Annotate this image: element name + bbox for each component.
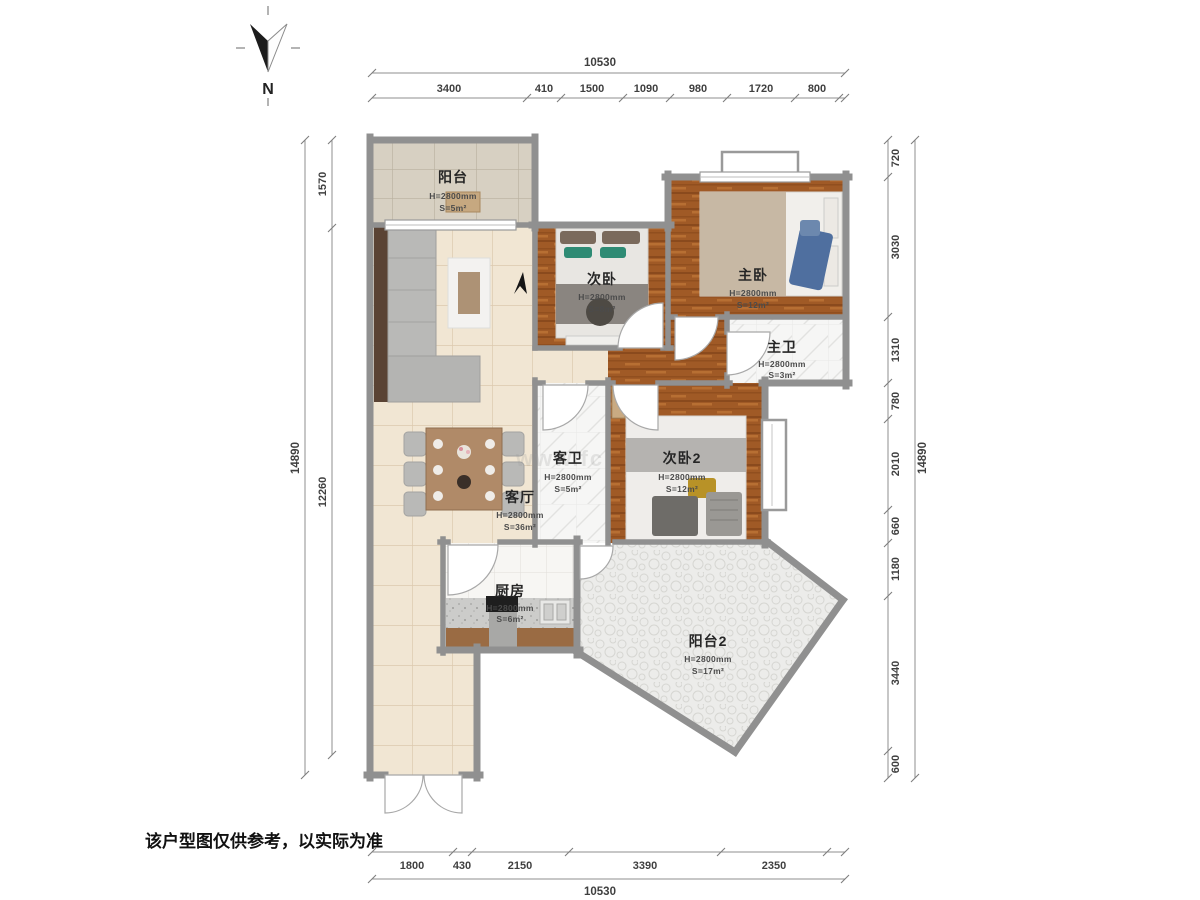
floorplan-canvas: N (0, 0, 1200, 900)
dim-seg: 1800 (400, 860, 424, 872)
window-bedroom3 (762, 420, 786, 510)
compass: N (236, 6, 300, 106)
room-name: 阳台2 (689, 633, 728, 649)
dim-seg: 1180 (890, 557, 902, 581)
dining-chair (404, 492, 426, 516)
room-name: 厨房 (495, 583, 525, 599)
plate (433, 491, 443, 501)
dim-seg: 1090 (634, 83, 658, 95)
sofa (388, 226, 436, 356)
room-name: 次卧 (587, 271, 617, 287)
dining-chair (404, 462, 426, 486)
room-name: 次卧2 (663, 450, 702, 466)
dim-seg: 3390 (633, 860, 657, 872)
dim-seg: 2010 (890, 452, 902, 476)
room-height: H=2800mm (578, 292, 626, 302)
room-area: S=3m² (768, 370, 795, 380)
room-height: H=2800mm (684, 654, 732, 664)
dim-seg: 980 (689, 83, 707, 95)
table-bowl (457, 475, 471, 489)
room-name: 主卫 (767, 339, 797, 355)
room-area: S=6m² (496, 614, 523, 624)
dim-seg: 3440 (890, 661, 902, 685)
dim-seg: 1310 (890, 338, 902, 362)
dim-seg: 3030 (890, 235, 902, 259)
flower (459, 447, 463, 451)
entry-door-left (385, 775, 423, 813)
dim-total-right: 14890 (917, 442, 929, 474)
dim-seg: 2150 (508, 860, 532, 872)
plate (485, 439, 495, 449)
room-area: S=5m² (439, 203, 466, 213)
sink-basin (557, 604, 566, 620)
dim-seg: 1570 (317, 172, 329, 196)
room-height: H=2800mm (486, 603, 534, 613)
dim-seg: 12260 (317, 477, 329, 508)
dim-seg: 3400 (437, 83, 461, 95)
entry-door-right (424, 775, 462, 813)
plate (485, 465, 495, 475)
dim-seg: 660 (890, 517, 902, 535)
dim-seg: 1720 (749, 83, 773, 95)
pillow-teal (564, 247, 592, 258)
pillow (602, 231, 640, 244)
dim-seg: 800 (808, 83, 826, 95)
coffee-table (458, 272, 480, 314)
pillow (652, 496, 698, 536)
room-area: S=17m² (692, 666, 724, 676)
pillow-striped (706, 492, 742, 536)
room-height: H=2800mm (429, 191, 477, 201)
plate (433, 439, 443, 449)
room-height: H=2800mm (496, 510, 544, 520)
disclaimer-note: 该户型图仅供参考，以实际为准 (145, 831, 383, 851)
sofa-chaise (388, 356, 480, 402)
dim-seg: 410 (535, 83, 553, 95)
dim-seg: 600 (890, 755, 902, 773)
plate (433, 465, 443, 475)
dim-seg: 430 (453, 860, 471, 872)
pillow-teal (600, 247, 626, 258)
room-area: S=8m² (588, 304, 615, 314)
pillow (560, 231, 596, 244)
dim-seg: 2350 (762, 860, 786, 872)
dim-total-bottom: 10530 (584, 886, 616, 898)
room-height: H=2800mm (544, 472, 592, 482)
dim-total-top: 10530 (584, 57, 616, 69)
dim-seg: 1500 (580, 83, 604, 95)
pillow (824, 198, 838, 238)
dim-seg: 720 (890, 149, 902, 167)
plate (485, 491, 495, 501)
room-name: 客厅 (504, 489, 535, 505)
sink-basin (544, 604, 553, 620)
dim-total-left: 14890 (290, 442, 302, 474)
dim-seg: 780 (890, 392, 902, 410)
flower (466, 450, 470, 454)
sofa-back-panel (374, 224, 388, 402)
compass-label: N (262, 81, 274, 98)
room-area: S=12m² (737, 300, 769, 310)
room-height: H=2800mm (729, 288, 777, 298)
north-arrow-icon (250, 24, 268, 72)
dining-chair (404, 432, 426, 456)
room-name: 客卫 (552, 450, 583, 466)
room-name: 阳台 (438, 169, 468, 185)
floorplan-svg: N (0, 0, 1200, 900)
room-height: H=2800mm (758, 359, 806, 369)
clothes-blue-small (800, 220, 820, 236)
room-height: H=2800mm (658, 472, 706, 482)
room-area: S=5m² (554, 484, 581, 494)
room-name: 主卧 (738, 267, 768, 283)
room-area: S=12m² (666, 484, 698, 494)
north-arrow-icon-light (268, 24, 287, 72)
room-area: S=36m² (504, 522, 536, 532)
